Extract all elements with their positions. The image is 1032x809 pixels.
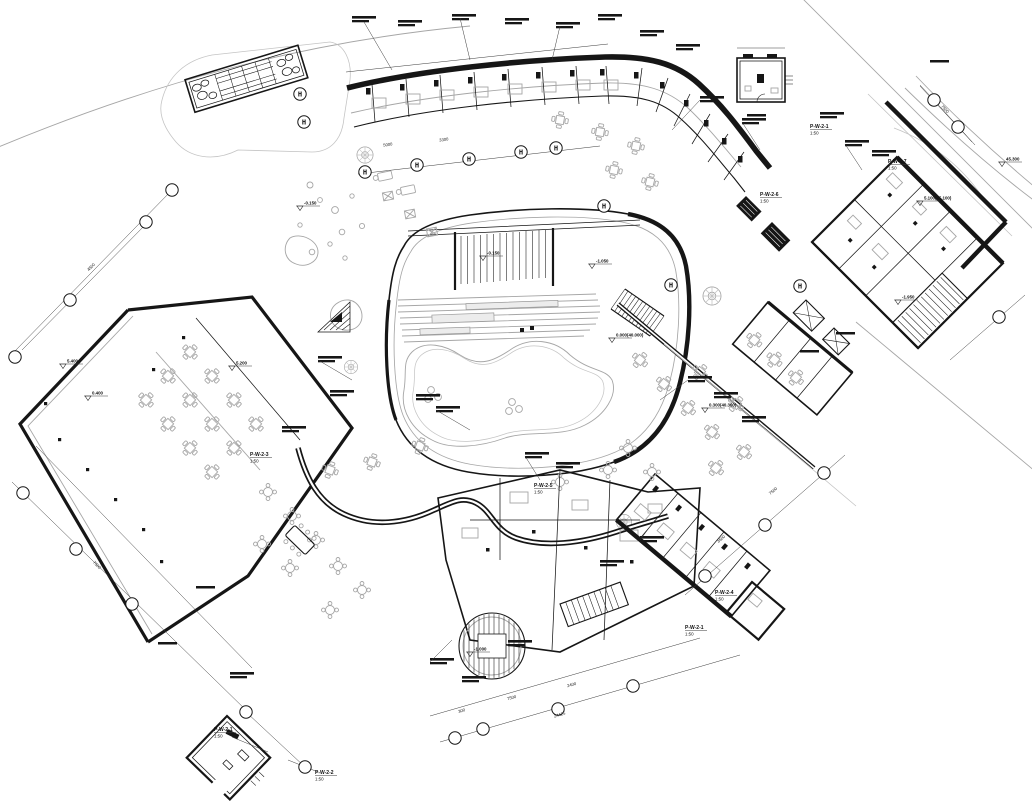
svg-text:P-W-2-3: P-W-2-3 bbox=[250, 452, 269, 458]
grid-bubble bbox=[64, 294, 76, 306]
svg-text:1:50: 1:50 bbox=[534, 490, 543, 495]
svg-text:P-W-2-7: P-W-2-7 bbox=[888, 159, 907, 165]
grid-bubble bbox=[699, 570, 711, 582]
grid-bubble bbox=[477, 723, 489, 735]
grid-bubble: H bbox=[359, 166, 371, 178]
svg-text:H: H bbox=[669, 281, 673, 289]
grid-bubble: H bbox=[794, 280, 806, 292]
elevation-marker: -0.150 bbox=[296, 200, 320, 210]
dimension-label: 2400 bbox=[566, 681, 577, 689]
north-wing bbox=[346, 44, 770, 192]
detail-code: P-W-2-11:50 bbox=[685, 625, 707, 637]
svg-text:H: H bbox=[467, 155, 471, 163]
svg-text:5.100(45.100): 5.100(45.100) bbox=[924, 195, 952, 200]
far-east-block bbox=[812, 86, 1006, 348]
svg-text:H: H bbox=[298, 90, 302, 98]
dimension-label: 3600 bbox=[716, 534, 727, 544]
detail-code: P-W-2-21:50 bbox=[315, 770, 337, 782]
annotation-layer: HHHHHHHHHH-0.150-0.150-1.0505.4000.4005.… bbox=[9, 88, 1022, 782]
grid-bubble bbox=[299, 761, 311, 773]
grid-bubble: H bbox=[463, 153, 475, 165]
elevation-marker: -1.950 bbox=[894, 294, 918, 304]
detail-code: P-W-2-41:50 bbox=[715, 590, 737, 602]
elevation-marker: 0.400 bbox=[84, 390, 108, 400]
dimension-label: 3300 bbox=[439, 136, 450, 142]
grid-bubble: H bbox=[294, 88, 306, 100]
detail-code: P-W-2-11:50 bbox=[810, 124, 832, 136]
svg-text:H: H bbox=[554, 144, 558, 152]
svg-text:H: H bbox=[519, 148, 523, 156]
detail-code: P-W-2-51:50 bbox=[534, 483, 556, 495]
svg-text:1:50: 1:50 bbox=[214, 734, 223, 739]
grid-bubble: H bbox=[515, 146, 527, 158]
svg-text:P-W-2-5: P-W-2-5 bbox=[534, 483, 553, 489]
svg-text:-1.950: -1.950 bbox=[902, 294, 915, 299]
svg-text:H: H bbox=[602, 202, 606, 210]
svg-text:P-W-2-1: P-W-2-1 bbox=[685, 625, 704, 631]
restaurant-tables bbox=[134, 340, 370, 618]
grid-bubble bbox=[9, 351, 21, 363]
grid-bubble bbox=[240, 706, 252, 718]
svg-text:-1.000: -1.000 bbox=[474, 646, 487, 651]
dimension-label: 4500 bbox=[86, 261, 97, 272]
svg-text:1:50: 1:50 bbox=[888, 166, 897, 171]
floor-plan-svg: HHHHHHHHHH-0.150-0.150-1.0505.4000.4005.… bbox=[0, 0, 1032, 809]
site-context bbox=[0, 0, 1032, 472]
svg-text:-0.150: -0.150 bbox=[304, 200, 317, 205]
svg-text:1:50: 1:50 bbox=[315, 777, 324, 782]
grid-bubble bbox=[818, 467, 830, 479]
elevation-marker: -1.050 bbox=[588, 258, 612, 268]
pavilion-north bbox=[737, 48, 793, 117]
grid-bubble: H bbox=[298, 116, 310, 128]
svg-text:1:50: 1:50 bbox=[760, 199, 769, 204]
dimension-label: 7500 bbox=[506, 694, 517, 702]
dimension-label: 5000 bbox=[383, 141, 394, 147]
svg-text:45.300: 45.300 bbox=[1006, 156, 1020, 161]
svg-text:0.400: 0.400 bbox=[92, 390, 104, 395]
grid-bubble bbox=[449, 732, 461, 744]
grid-bubble bbox=[759, 519, 771, 531]
svg-text:P-W-2-1: P-W-2-1 bbox=[810, 124, 829, 130]
svg-text:0.300(40.300): 0.300(40.300) bbox=[709, 402, 737, 407]
elevation-marker: 5.200 bbox=[228, 360, 252, 370]
grid-bubble: H bbox=[665, 279, 677, 291]
svg-text:H: H bbox=[798, 282, 802, 290]
leader-notes bbox=[158, 14, 949, 682]
grid-bubble bbox=[993, 311, 1005, 323]
svg-text:5.200: 5.200 bbox=[236, 360, 248, 365]
detail-code: P-W-2-31:50 bbox=[250, 452, 272, 464]
grid-bubble bbox=[126, 598, 138, 610]
svg-text:-1.050: -1.050 bbox=[596, 258, 609, 263]
grid-bubble bbox=[952, 121, 964, 133]
grid-bubble bbox=[17, 487, 29, 499]
floor-plan-canvas: HHHHHHHHHH-0.150-0.150-1.0505.4000.4005.… bbox=[0, 0, 1032, 809]
svg-text:1:50: 1:50 bbox=[810, 131, 819, 136]
grid-bubble bbox=[70, 543, 82, 555]
grid-bubble bbox=[166, 184, 178, 196]
grid-bubble: H bbox=[598, 200, 610, 212]
dimension-label: 300 bbox=[458, 707, 467, 714]
svg-text:H: H bbox=[363, 168, 367, 176]
svg-text:H: H bbox=[415, 161, 419, 169]
svg-text:0.000(40.000): 0.000(40.000) bbox=[616, 332, 644, 337]
grid-bubble bbox=[627, 680, 639, 692]
timber-bridge bbox=[185, 45, 308, 112]
elevation-marker: 0.000(40.000) bbox=[608, 332, 644, 342]
svg-text:H: H bbox=[302, 118, 306, 126]
elevation-marker: -0.150 bbox=[479, 250, 503, 260]
svg-text:1:50: 1:50 bbox=[685, 632, 694, 637]
svg-text:5.400: 5.400 bbox=[67, 358, 79, 363]
grid-bubble: H bbox=[411, 159, 423, 171]
svg-text:-0.150: -0.150 bbox=[487, 250, 500, 255]
svg-text:P-W-2-1: P-W-2-1 bbox=[214, 727, 233, 733]
svg-text:1:50: 1:50 bbox=[250, 459, 259, 464]
svg-text:P-W-2-4: P-W-2-4 bbox=[715, 590, 734, 596]
dimension-label: 7500 bbox=[768, 486, 779, 496]
west-wing bbox=[20, 297, 371, 642]
svg-text:P-W-2-2: P-W-2-2 bbox=[315, 770, 334, 776]
grid-bubble bbox=[928, 94, 940, 106]
snake-corridor bbox=[298, 435, 668, 543]
svg-text:1:50: 1:50 bbox=[715, 597, 724, 602]
grid-bubble: H bbox=[550, 142, 562, 154]
grid-bubble bbox=[140, 216, 152, 228]
south-east-wing bbox=[616, 474, 784, 640]
detail-code: P-W-2-61:50 bbox=[760, 192, 782, 204]
east-wing bbox=[733, 196, 853, 415]
svg-text:P-W-2-6: P-W-2-6 bbox=[760, 192, 779, 198]
